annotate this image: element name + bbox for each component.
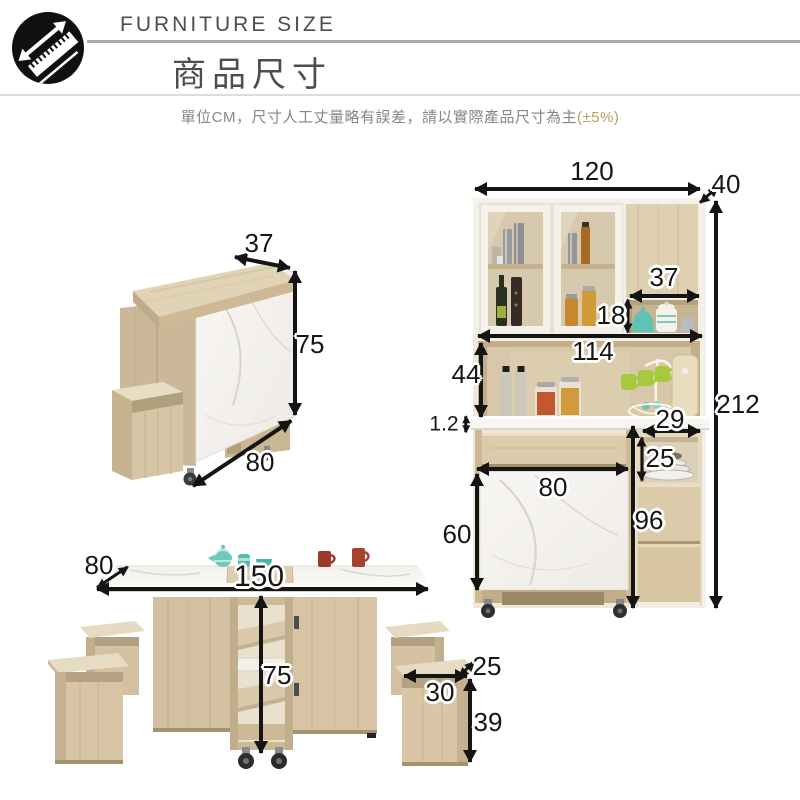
- dim-label-cabinet-width: 120: [570, 158, 613, 184]
- tableware-items: [208, 545, 369, 567]
- dim-label-stool-width: 30: [426, 679, 455, 705]
- dim-label-stool-height: 39: [474, 709, 503, 735]
- table-left-panel: [153, 597, 230, 732]
- dim-label-niche-width: 37: [650, 264, 679, 290]
- dim-label-table-length: 150: [234, 562, 284, 592]
- dim-label-side-unit-height: 96: [635, 507, 664, 533]
- dim-label-cabinet-total-height: 212: [716, 391, 759, 417]
- dim-arrow-counter-thickness: [465, 416, 468, 432]
- dim-arrow-stool-height: [468, 679, 472, 762]
- dim-arrow-niche-height: [627, 300, 630, 333]
- dim-arrow-cabinet-width: [475, 187, 700, 191]
- dim-label-side-shelf-height: 25: [646, 445, 675, 471]
- glass-door-left: [480, 204, 551, 334]
- dim-arrow-niche-width: [630, 294, 699, 298]
- dim-label-fold-door-height: 60: [443, 521, 472, 547]
- dim-label-counter-thickness: 1.2: [429, 414, 458, 435]
- dim-label-stool-depth: 25: [473, 653, 502, 679]
- dim-label-opening-height: 44: [452, 361, 481, 387]
- dim-arrow-side-shelf-height: [641, 438, 644, 481]
- dim-label-folded-height: 75: [296, 331, 325, 357]
- display-niche: [628, 300, 698, 333]
- dim-label-inner-width: 114: [572, 338, 613, 364]
- dim-label-cabinet-depth: 40: [712, 171, 741, 197]
- dim-label-niche-height: 18: [597, 302, 626, 328]
- table-right-panel: [293, 597, 377, 738]
- dim-label-side-shelf-width: 29: [656, 406, 685, 432]
- lower-left-unit: [475, 430, 633, 618]
- dim-arrow-fold-door-height: [475, 474, 479, 590]
- dim-arrow-fold-door-width: [477, 467, 628, 471]
- dim-label-table-height: 75: [263, 662, 292, 688]
- dim-label-table-depth: 80: [85, 552, 114, 578]
- size-diagram-stage: 37 75 80 120 40 212 37 18 114 44 1.2 80 …: [0, 0, 800, 800]
- furniture-size-page: FURNITURE SIZE 商品尺寸 單位CM，尺寸人工丈量略有誤差，請以實際…: [0, 0, 800, 800]
- dim-label-folded-top-depth: 37: [245, 230, 274, 256]
- dim-label-folded-length: 80: [246, 449, 275, 475]
- dim-label-fold-door-width: 80: [539, 474, 568, 500]
